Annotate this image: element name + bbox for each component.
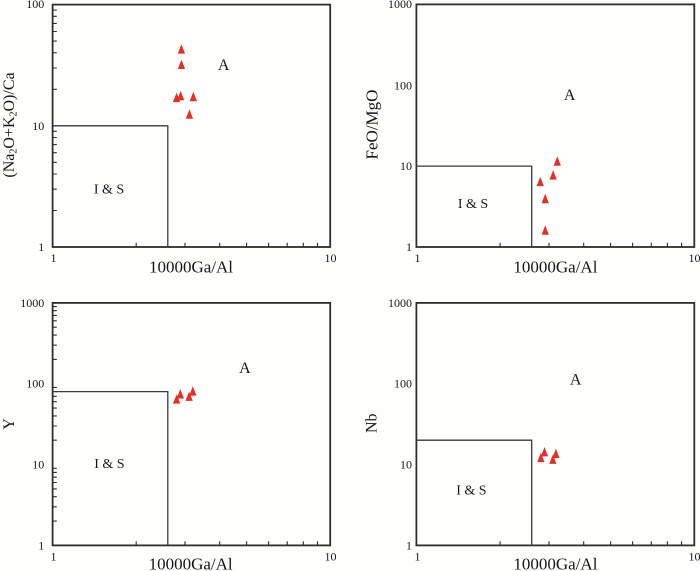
svg-text:(Na2O+K2O)/Ca: (Na2O+K2O)/Ca [1, 72, 20, 177]
svg-text:10: 10 [400, 458, 412, 472]
svg-text:10: 10 [689, 251, 700, 265]
svg-text:10: 10 [400, 159, 412, 173]
svg-text:Y: Y [1, 418, 18, 430]
svg-text:10: 10 [32, 458, 44, 472]
svg-text:1: 1 [406, 240, 412, 254]
svg-text:A: A [239, 360, 251, 377]
svg-text:1: 1 [415, 550, 421, 564]
svg-text:1000: 1000 [20, 296, 44, 310]
svg-text:I & S: I & S [94, 457, 124, 472]
svg-text:1000: 1000 [388, 0, 412, 11]
svg-text:I & S: I & S [458, 197, 488, 212]
svg-text:A: A [564, 87, 576, 104]
svg-text:1: 1 [406, 538, 412, 552]
svg-text:10000Ga/Al: 10000Ga/Al [149, 258, 233, 277]
svg-text:1: 1 [38, 240, 44, 254]
svg-text:10000Ga/Al: 10000Ga/Al [149, 554, 233, 571]
svg-text:I & S: I & S [456, 484, 486, 499]
svg-text:10: 10 [325, 550, 337, 564]
svg-text:1: 1 [415, 251, 421, 265]
svg-text:100: 100 [394, 377, 412, 391]
svg-text:100: 100 [26, 0, 44, 11]
svg-text:Nb: Nb [364, 413, 381, 433]
svg-text:10: 10 [689, 550, 700, 564]
svg-text:1: 1 [51, 251, 57, 265]
svg-text:1000: 1000 [388, 296, 412, 310]
svg-text:10: 10 [325, 251, 337, 265]
svg-text:1: 1 [38, 538, 44, 552]
svg-text:10000Ga/Al: 10000Ga/Al [513, 258, 597, 277]
svg-text:A: A [218, 57, 230, 74]
svg-text:I & S: I & S [94, 182, 124, 197]
svg-text:10000Ga/Al: 10000Ga/Al [513, 554, 597, 571]
svg-text:100: 100 [394, 78, 412, 92]
svg-text:10: 10 [32, 119, 44, 133]
svg-text:100: 100 [26, 377, 44, 391]
svg-text:A: A [570, 372, 582, 389]
svg-text:1: 1 [51, 550, 57, 564]
svg-text:FeO/MgO: FeO/MgO [362, 90, 381, 160]
